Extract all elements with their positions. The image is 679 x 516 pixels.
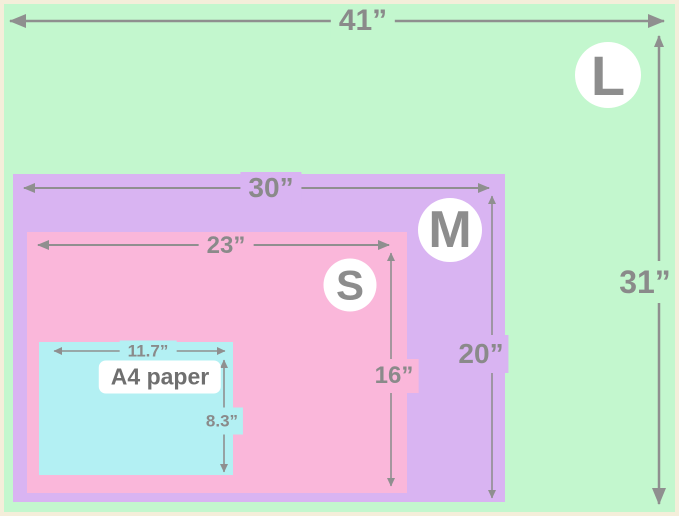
a4-width-label: 11.7” (120, 341, 177, 362)
m-width-label: 30” (240, 172, 301, 204)
a4-paper-tag: A4 paper (99, 361, 221, 394)
size-l-badge: L (575, 42, 641, 108)
s-height-label: 16” (370, 359, 419, 393)
l-width-label: 41” (331, 4, 395, 38)
m-height-label: 20” (453, 335, 508, 373)
size-comparison-diagram: 41” 31” 30” 20” 23” 16” 11.7” 8.3” A4 pa… (0, 0, 679, 516)
l-height-label: 31” (614, 261, 676, 303)
size-m-badge: M (418, 198, 482, 262)
s-width-label: 23” (199, 232, 254, 260)
size-s-badge: S (324, 259, 377, 312)
a4-height-label: 8.3” (201, 408, 243, 435)
